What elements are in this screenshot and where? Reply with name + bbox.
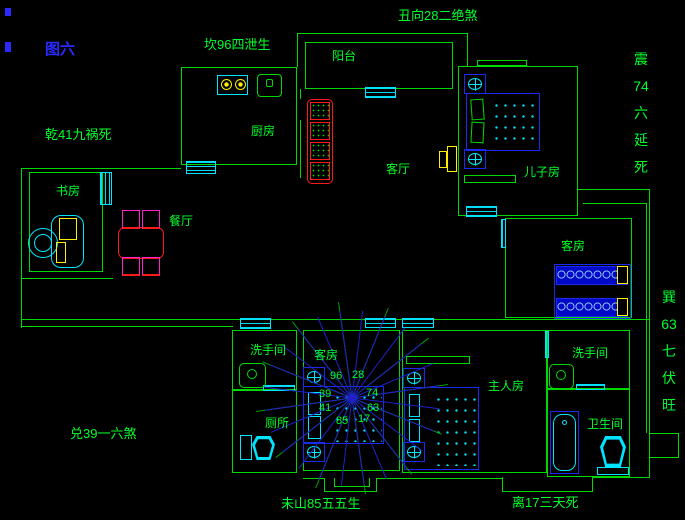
direction-label-northwest: 乾41九祸死 xyxy=(45,127,111,142)
washroom-west-basin xyxy=(247,369,257,379)
shelf xyxy=(406,356,470,364)
study-chair xyxy=(28,228,58,258)
wall-segment xyxy=(502,477,503,492)
center-bed-pillow xyxy=(308,416,321,439)
master-bed-pillow xyxy=(409,394,420,417)
room-label-toilet-west: 厕所 xyxy=(265,417,289,430)
door-bathroom-east xyxy=(576,384,605,390)
entry-step xyxy=(324,491,377,492)
master-bed-mattress xyxy=(431,391,477,466)
entry-step xyxy=(369,478,370,487)
wall-niche xyxy=(477,60,527,66)
ceiling-fan-icon xyxy=(464,149,486,169)
compass-number: 39 xyxy=(319,389,331,400)
direction-label-west: 兑39一六煞 xyxy=(70,426,136,441)
wall-ledge xyxy=(649,433,679,458)
window-kitchen xyxy=(186,161,216,174)
window-study xyxy=(100,172,112,205)
cad-artifact xyxy=(5,8,11,16)
wall-segment xyxy=(21,278,113,279)
room-label-study: 书房 xyxy=(56,185,80,198)
room-label-master-room: 主人房 xyxy=(488,380,524,393)
tv xyxy=(439,151,447,168)
door-toilet-west xyxy=(263,385,295,391)
compass-number: 28 xyxy=(352,370,364,381)
ceiling-fan-icon xyxy=(303,367,325,387)
dining-chair xyxy=(142,257,160,276)
wall-segment xyxy=(583,203,646,204)
wall-segment xyxy=(300,89,301,99)
wall-segment xyxy=(649,189,650,434)
shelf xyxy=(464,175,516,183)
dining-chair xyxy=(122,210,140,229)
cad-floorplan-viewport[interactable]: 96 28 74 63 17 85 41 39 图六 丑向28二绝煞 坎96四泄… xyxy=(0,0,685,520)
direction-label-southeast-char: 七 xyxy=(662,344,676,359)
entry-step xyxy=(376,478,377,492)
window-son-room xyxy=(466,206,497,217)
wall-segment xyxy=(592,477,593,492)
computer-monitor xyxy=(59,218,77,240)
direction-label-southeast-char: 伏 xyxy=(662,371,676,386)
wall-segment xyxy=(21,168,22,328)
dining-table xyxy=(118,227,164,259)
room-label-washroom-east: 洗手间 xyxy=(572,347,608,360)
direction-label-north: 坎96四泄生 xyxy=(204,37,270,52)
wall-segment xyxy=(578,189,650,190)
son-bed-pillow xyxy=(470,99,484,121)
wall-segment xyxy=(502,491,593,492)
washroom-east-basin xyxy=(556,370,566,380)
room-label-guest-room-east: 客房 xyxy=(561,240,585,253)
room-label-son-room: 儿子房 xyxy=(524,166,560,179)
wall-segment xyxy=(300,120,301,178)
wall-segment xyxy=(303,478,325,479)
compass-number: 17 xyxy=(358,414,370,425)
wall-segment xyxy=(646,203,647,433)
wall-segment xyxy=(592,477,650,478)
direction-label-top: 丑向28二绝煞 xyxy=(398,8,477,23)
room-label-guest-room-center: 客房 xyxy=(314,349,338,362)
sofa-cushion xyxy=(310,142,330,160)
sofa-cushion xyxy=(310,122,330,140)
wall-segment xyxy=(21,168,181,169)
ceiling-fan-icon xyxy=(303,442,325,462)
sofa-cushion xyxy=(310,162,330,180)
wall-segment xyxy=(297,33,468,34)
window-washroom-west xyxy=(240,318,271,329)
tv-screen xyxy=(447,146,457,172)
cad-artifact xyxy=(5,42,11,52)
ceiling-fan-icon xyxy=(464,74,486,94)
direction-label-southeast: 巽 63 七 伏 旺 xyxy=(658,290,680,413)
window-balcony xyxy=(365,87,396,98)
direction-label-southeast-char: 63 xyxy=(661,317,677,332)
compass-number: 74 xyxy=(366,388,378,399)
dining-chair xyxy=(122,257,140,276)
toilet-east-base xyxy=(597,467,629,475)
wall-segment xyxy=(377,478,503,479)
entry-step xyxy=(334,486,370,487)
direction-label-bottom: 未山85五五生 xyxy=(281,496,360,511)
room-label-dining-room: 餐厅 xyxy=(169,215,193,228)
guest-bed-pillow xyxy=(617,266,628,284)
toilet-west-walls xyxy=(232,390,297,473)
wall-segment xyxy=(21,326,233,327)
stove-burner-icon xyxy=(235,79,246,90)
direction-label-east-char: 震 xyxy=(634,52,648,67)
direction-label-east-char: 延 xyxy=(634,133,648,148)
sofa-cushion xyxy=(310,102,330,120)
room-label-kitchen: 厨房 xyxy=(251,125,275,138)
son-bed-pillow xyxy=(470,122,484,144)
direction-label-south: 离17三天死 xyxy=(512,495,578,510)
guest-bed-pillow xyxy=(617,298,628,316)
bathtub-drain xyxy=(562,420,567,425)
dining-chair xyxy=(142,210,160,229)
direction-label-east-char: 死 xyxy=(634,160,648,175)
master-bed-pillow xyxy=(409,419,420,442)
wall-segment xyxy=(21,319,650,320)
wall-segment xyxy=(467,34,468,66)
balcony-walls xyxy=(305,42,453,89)
direction-label-southeast-char: 旺 xyxy=(662,398,676,413)
kitchen-sink-basin xyxy=(266,79,273,87)
computer-tower xyxy=(56,242,66,263)
entry-step xyxy=(324,478,325,492)
room-label-bathroom-east: 卫生间 xyxy=(587,418,623,431)
toilet-west-tank xyxy=(240,435,252,460)
wall-segment xyxy=(649,458,650,478)
son-bed-mattress xyxy=(489,97,537,148)
window-guest-center xyxy=(365,318,396,328)
wall-segment xyxy=(297,34,298,67)
compass-number: 41 xyxy=(319,403,331,414)
room-label-balcony: 阳台 xyxy=(332,50,356,63)
direction-label-southeast-char: 巽 xyxy=(662,290,676,305)
ceiling-fan-icon xyxy=(403,368,425,388)
room-label-living-room: 客厅 xyxy=(386,163,410,176)
figure-number-label: 图六 xyxy=(45,38,75,59)
door-washroom-east xyxy=(545,331,549,358)
direction-label-east-char: 74 xyxy=(633,79,649,94)
room-label-washroom-west: 洗手间 xyxy=(250,344,286,357)
compass-number: 96 xyxy=(330,371,342,382)
compass-number: 85 xyxy=(336,416,348,427)
window-master xyxy=(402,318,434,328)
door-guest-east xyxy=(501,219,506,248)
direction-label-east-char: 六 xyxy=(634,106,648,121)
direction-label-east: 震 74 六 延 死 xyxy=(630,52,652,175)
stove-burner-icon xyxy=(221,79,232,90)
